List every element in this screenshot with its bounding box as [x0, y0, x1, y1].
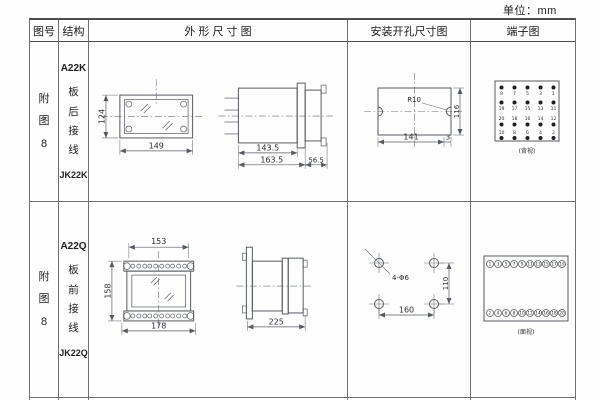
t-num: 19 — [498, 106, 504, 112]
t-num: 5 — [526, 91, 529, 97]
mounting-drawing-a22k: R10 141 3 116 — [348, 43, 470, 201]
t-num: 7 — [512, 261, 515, 266]
dim-mount-height2: 110 — [442, 276, 450, 289]
t-num: 18 — [511, 116, 517, 122]
t-num: 4 — [496, 310, 499, 315]
unit-label: 单位：mm — [503, 2, 557, 18]
terminal-circles-bottom: 2 4 6 8 10 12 14 16 18 20 — [486, 309, 565, 316]
t-num: 20 — [498, 116, 504, 122]
t-num: 1 — [552, 91, 555, 97]
dim-hole-spec: 4-Φ6 — [392, 274, 409, 282]
model-label-row2: A22Q — [60, 241, 86, 252]
t-num: 16 — [524, 116, 530, 122]
t-num: 15 — [543, 261, 549, 266]
cell-structure-row2: A22Q 板前接线 JK22Q — [59, 202, 89, 398]
terminal-circles-top: 1 3 5 7 9 11 13 15 17 19 — [486, 260, 565, 267]
cell-mounting-row1: R10 141 3 116 — [348, 42, 471, 202]
structure-row1: A22K 板后接线 JK22K — [59, 63, 87, 180]
front-view-a22q: 153 15 — [103, 237, 195, 335]
header-mounting: 安装开孔尺寸图 — [348, 20, 471, 42]
t-num: 2 — [552, 130, 555, 136]
dim-side-56: 56.5 — [308, 156, 324, 164]
t-num: 2 — [488, 310, 491, 315]
relay-label-row2: JK22Q — [59, 348, 88, 358]
cell-terminal-row1: 9 7 5 3 1 19 17 15 13 11 20 18 16 14 12 … — [471, 42, 575, 202]
t-num: 14 — [535, 310, 541, 315]
terminal-diagram-a22q: 1 3 5 7 9 11 13 15 17 19 2 4 6 8 — [472, 203, 575, 397]
cell-fig-no-row2: 附图8 — [30, 202, 59, 398]
t-num: 20 — [559, 310, 565, 315]
t-num: 17 — [551, 261, 557, 266]
t-num: 6 — [504, 310, 507, 315]
cell-structure-row1: A22K 板后接线 JK22K — [59, 42, 89, 202]
cell-outline-row1: 124 149 — [89, 42, 348, 202]
datasheet-page: 单位：mm 图号 结构 外 形 尺 寸 图 安装开孔尺寸图 端子图 附图8 A2… — [0, 0, 600, 400]
dim-notch-radius: R10 — [407, 96, 421, 104]
wiring-label-row2: 板前接线 — [67, 261, 80, 339]
t-num: 9 — [500, 91, 503, 97]
dim-mount-width: 141 — [403, 132, 418, 141]
structure-row2: A22Q 板前接线 JK22Q — [59, 241, 88, 358]
dim-front-height2: 158 — [103, 283, 112, 298]
header-terminal: 端子图 — [471, 20, 575, 42]
t-num: 8 — [512, 310, 515, 315]
terminal-caption-row2: (面视) — [517, 328, 534, 336]
dim-front-bottom: 178 — [151, 321, 166, 330]
dimension-table: 图号 结构 外 形 尺 寸 图 安装开孔尺寸图 端子图 附图8 A22K 板后接… — [29, 18, 576, 400]
terminal-numbers: 9 7 5 3 1 19 17 15 13 11 20 18 16 14 12 … — [498, 91, 556, 136]
dim-mount-width2: 160 — [399, 305, 414, 314]
relay-label-row1: JK22K — [59, 170, 87, 180]
t-num: 1 — [488, 261, 491, 266]
header-structure: 结构 — [59, 20, 89, 42]
dim-mount-height: 116 — [453, 104, 461, 118]
header-fig-no: 图号 — [30, 20, 59, 42]
t-num: 18 — [551, 310, 557, 315]
mounting-drawing-a22q: 4-Φ6 160 110 — [348, 203, 470, 397]
t-num: 17 — [511, 106, 517, 112]
t-num: 8 — [513, 130, 516, 136]
t-num: 3 — [539, 91, 542, 97]
t-num: 4 — [539, 130, 542, 136]
t-num: 12 — [550, 116, 556, 122]
dim-front-width: 149 — [149, 141, 164, 150]
fig-no-row1: 附图8 — [37, 88, 51, 156]
fig-no-row2: 附图8 — [37, 266, 51, 334]
t-num: 7 — [513, 91, 516, 97]
header-outline: 外 形 尺 寸 图 — [89, 20, 348, 42]
cell-terminal-row2: 1 3 5 7 9 11 13 15 17 19 2 4 6 8 — [471, 202, 575, 398]
t-num: 9 — [520, 261, 523, 266]
cell-mounting-row2: 4-Φ6 160 110 — [348, 202, 471, 398]
t-num: 11 — [550, 106, 556, 112]
t-num: 6 — [526, 130, 529, 136]
t-num: 10 — [519, 310, 525, 315]
t-num: 14 — [537, 116, 543, 122]
cell-outline-row2: 153 15 — [89, 202, 348, 398]
dim-front-height: 124 — [97, 108, 106, 123]
hatch-marks-2 — [151, 277, 174, 301]
t-num: 5 — [504, 261, 507, 266]
outline-drawing-a22k: 124 149 — [89, 43, 347, 201]
terminal-caption-row1: (背视) — [518, 147, 535, 155]
t-num: 16 — [543, 310, 549, 315]
dim-side-163: 163.5 — [260, 155, 283, 164]
t-num: 12 — [527, 310, 533, 315]
t-num: 13 — [535, 261, 541, 266]
t-num: 3 — [496, 261, 499, 266]
t-num: 10 — [498, 130, 504, 136]
cell-fig-no-row1: 附图8 — [30, 42, 59, 202]
dim-front-top: 153 — [151, 237, 166, 246]
t-num: 13 — [537, 106, 543, 112]
hatch-marks — [141, 104, 173, 130]
model-label-row1: A22K — [61, 63, 87, 74]
side-view-a22k: 143.5 163.5 56.5 — [218, 83, 333, 169]
terminal-diagram-a22k: 9 7 5 3 1 19 17 15 13 11 20 18 16 14 12 … — [472, 43, 575, 201]
front-view-a22k: 124 149 — [97, 79, 202, 155]
dim-side-143: 143.5 — [256, 143, 279, 152]
wiring-label-row1: 板后接线 — [67, 83, 80, 161]
dim-mount-edge: 3 — [446, 133, 450, 141]
side-view-a22q: 225 — [236, 247, 312, 331]
t-num: 15 — [524, 106, 530, 112]
dim-side-length: 225 — [269, 317, 284, 326]
t-num: 11 — [527, 261, 533, 266]
t-num: 19 — [559, 261, 565, 266]
outline-drawing-a22q: 153 15 — [89, 203, 347, 397]
